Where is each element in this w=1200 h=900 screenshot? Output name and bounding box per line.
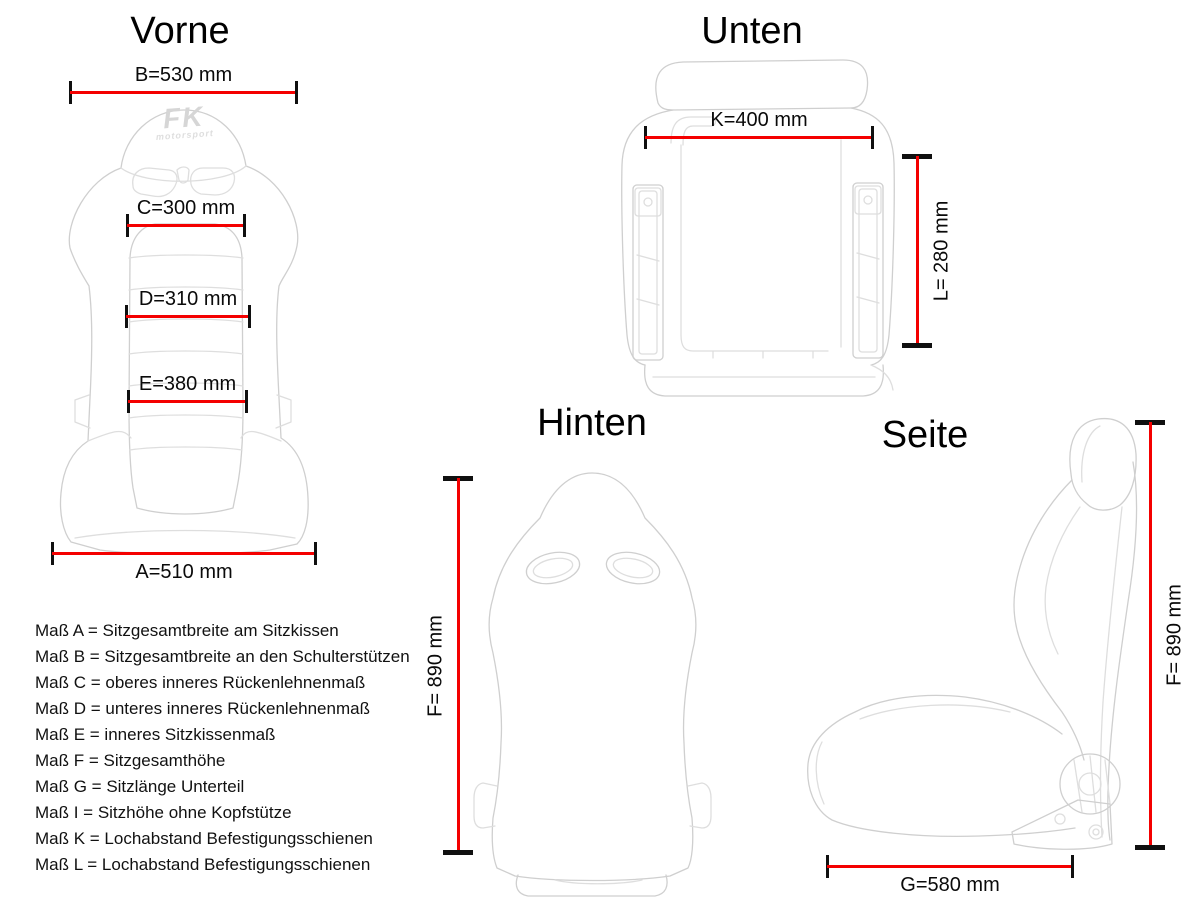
legend-item-A: Maß A = Sitzgesamtbreite am Sitzkissen [35,618,410,644]
dim-label-C: C=300 mm [137,197,235,220]
view-title-vorne: Vorne [130,12,229,50]
legend-item-D: Maß D = unteres inneres Rückenlehnenmaß [35,696,410,722]
legend-item-G: Maß G = Sitzlänge Unterteil [35,774,410,800]
dim-label-K: K=400 mm [710,109,807,132]
view-title-unten: Unten [701,12,802,50]
dim-tick [248,305,251,328]
view-title-hinten: Hinten [537,404,647,442]
legend-item-C: Maß C = oberes inneres Rückenlehnenmaß [35,670,410,696]
dim-tick [902,343,932,348]
dim-label-D: D=310 mm [139,288,237,311]
dim-label-F-hinten: F= 890 mm [425,615,448,717]
dim-tick [1135,845,1165,850]
dim-line-red [127,224,245,227]
dim-line-red [52,552,316,555]
seat-front-drawing [55,108,315,553]
dim-line-red [1149,422,1152,848]
seat-side-drawing [800,412,1140,862]
dim-line-red [645,136,873,139]
dim-label-E: E=380 mm [139,373,236,396]
dim-label-G: G=580 mm [900,874,999,897]
dimension-legend: Maß A = Sitzgesamtbreite am Sitzkissen M… [35,618,410,878]
dim-tick [443,850,473,855]
legend-item-F: Maß F = Sitzgesamthöhe [35,748,410,774]
seat-back-drawing [470,468,715,898]
legend-item-I: Maß I = Sitzhöhe ohne Kopfstütze [35,800,410,826]
dim-tick [314,542,317,565]
dim-tick [295,81,298,104]
dim-label-F-seite: F= 890 mm [1164,584,1187,686]
dim-line-red [126,315,250,318]
legend-item-B: Maß B = Sitzgesamtbreite an den Schulter… [35,644,410,670]
dim-tick [245,390,248,413]
seat-bottom-drawing [613,55,903,405]
dim-label-B: B=530 mm [135,64,232,87]
dim-label-L: L= 280 mm [931,201,954,302]
dim-line-red [457,478,460,853]
dim-line-red [70,91,297,94]
fk-motorsport-logo: FK motorsport [154,102,214,142]
seat-dimension-diagram: Vorne Unten Hinten Seite FK motorsport [0,0,1200,900]
dim-line-red [916,156,919,346]
dim-line-red [128,400,247,403]
dim-label-A: A=510 mm [135,561,232,584]
legend-item-L: Maß L = Lochabstand Befestigungsschienen [35,852,410,878]
dim-tick [243,214,246,237]
dim-line-red [827,865,1073,868]
legend-item-K: Maß K = Lochabstand Befestigungsschienen [35,826,410,852]
dim-tick [1071,855,1074,878]
legend-item-E: Maß E = inneres Sitzkissenmaß [35,722,410,748]
dim-tick [871,126,874,149]
